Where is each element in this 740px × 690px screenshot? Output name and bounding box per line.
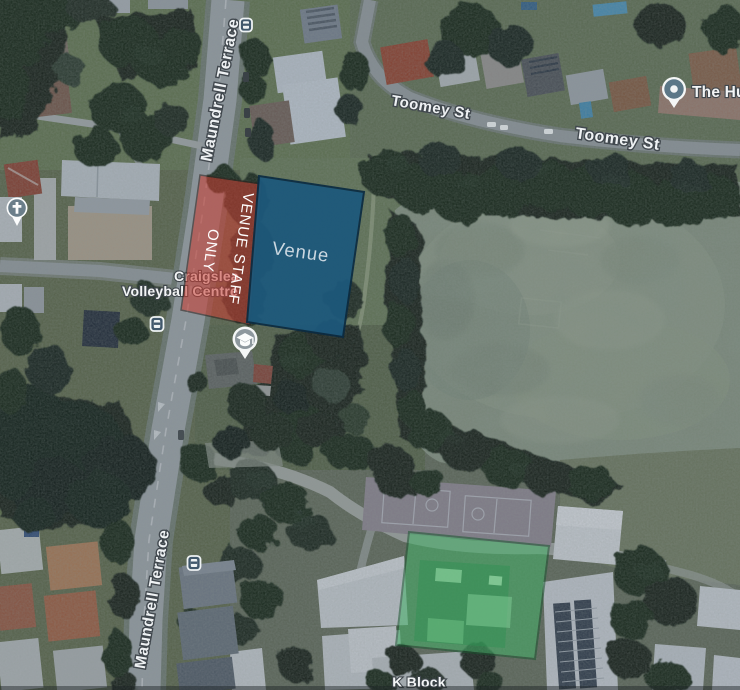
svg-text:The Hu: The Hu xyxy=(692,84,740,101)
